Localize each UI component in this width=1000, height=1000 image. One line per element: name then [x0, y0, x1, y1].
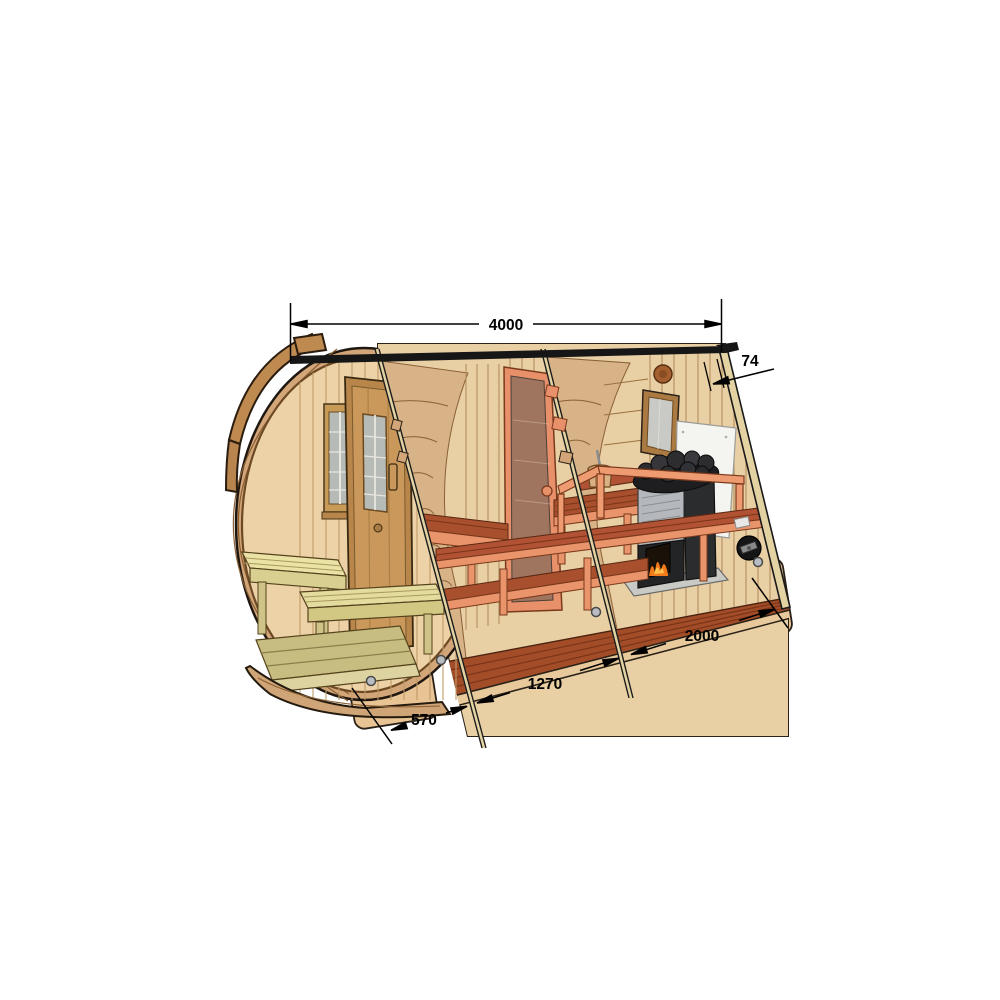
sauna-cutaway-drawing: 4000 74 570 1270 [0, 0, 1000, 1000]
door-handle [389, 464, 397, 490]
interior-cutaway [377, 343, 791, 737]
dim-label-overall-length: 4000 [489, 317, 523, 334]
dim-label-porch-length: 570 [411, 712, 437, 729]
dim-label-changing-room-length: 1270 [528, 676, 562, 693]
glass-door-knob [542, 486, 552, 496]
dim-label-sauna-room-length: 2000 [685, 628, 719, 645]
sauna-window [641, 390, 679, 459]
barrel-sauna-diagram: 4000 74 570 1270 [0, 0, 1000, 1000]
sliding-vent-icon [737, 536, 761, 560]
air-vent-icon [654, 365, 672, 383]
door-knob [374, 524, 382, 532]
dim-label-wall-thickness: 74 [741, 353, 759, 370]
